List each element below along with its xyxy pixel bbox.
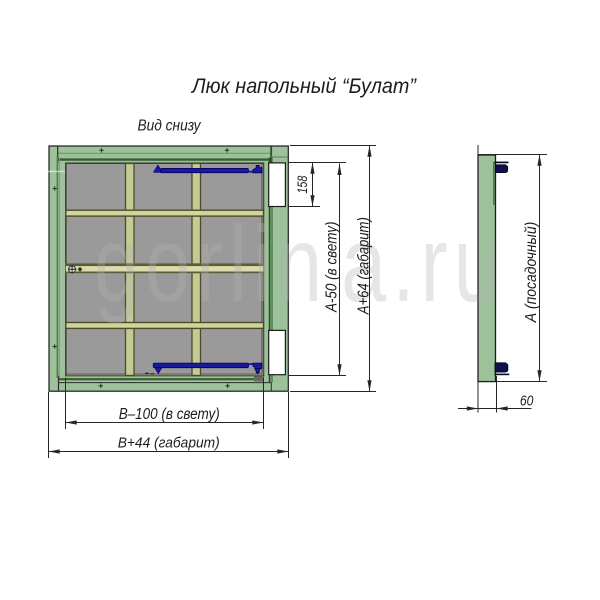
svg-text:А-50 (в свету): А-50 (в свету) [324, 222, 341, 313]
svg-text:А (посадочный): А (посадочный) [523, 222, 540, 323]
svg-text:В–100 (в свету): В–100 (в свету) [119, 406, 220, 423]
svg-text:Люк напольный “Булат”: Люк напольный “Булат” [190, 75, 417, 98]
svg-text:А+64 (габарит): А+64 (габарит) [356, 217, 373, 315]
svg-text:158: 158 [294, 175, 310, 193]
svg-text:60: 60 [520, 394, 534, 410]
svg-text:Вид снизу: Вид снизу [138, 118, 202, 135]
svg-text:В+44 (габарит): В+44 (габарит) [118, 435, 220, 452]
svg-text:gorlina.ru: gorlina.ru [94, 205, 505, 325]
